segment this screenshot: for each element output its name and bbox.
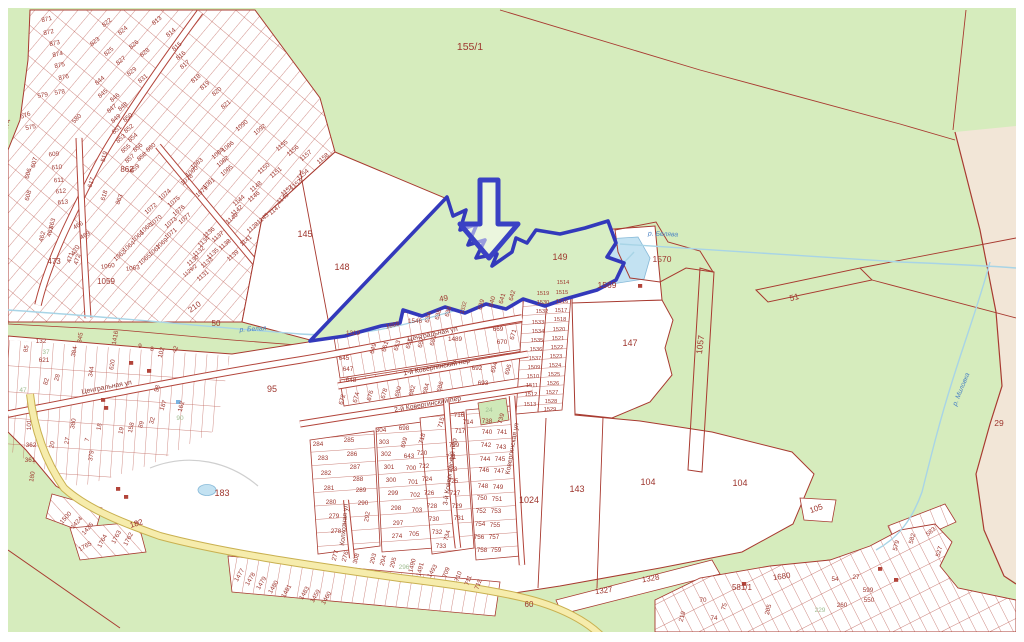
- parcel-label-717: 717: [455, 428, 466, 435]
- parcel-label-1489: 1489: [448, 336, 463, 343]
- parcel-label-145: 145: [297, 229, 312, 239]
- parcel-label-101: 101: [26, 419, 33, 430]
- parcel-label-1059: 1059: [97, 277, 115, 286]
- parcel-label-724: 724: [422, 476, 433, 483]
- parcel-label-749: 749: [493, 484, 504, 491]
- parcel-label-754: 754: [475, 521, 486, 528]
- building-marker: [124, 495, 128, 499]
- map-canvas[interactable]: 155/114514814914795102414310410418329511…: [0, 0, 1024, 642]
- parcel-label-550: 550: [864, 597, 875, 604]
- parcel-label-719: 719: [449, 442, 460, 449]
- parcel-label-70: 70: [699, 597, 707, 604]
- parcel-label-148: 148: [334, 262, 349, 272]
- parcel-label-757: 757: [489, 534, 500, 541]
- parcel-label-60: 60: [525, 600, 534, 609]
- parcel-label-1535: 1535: [531, 338, 543, 344]
- parcel-label-745: 745: [495, 456, 506, 463]
- parcel-label-738: 738: [482, 418, 493, 425]
- parcel-label-104: 104: [732, 478, 747, 488]
- parcel-label-647: 647: [343, 366, 354, 373]
- parcel-label-759: 759: [491, 547, 502, 554]
- parcel-label-361: 361: [25, 457, 36, 464]
- parcel-label-743: 743: [496, 444, 507, 451]
- parcel-label-726: 726: [424, 490, 435, 497]
- parcel-label-613: 613: [57, 199, 69, 207]
- parcel-label-300: 300: [386, 477, 397, 484]
- parcel-label-740: 740: [482, 429, 493, 436]
- parcel-label-1513: 1513: [524, 402, 536, 408]
- parcel-label-702: 702: [410, 492, 421, 499]
- parcel-label-303: 303: [379, 439, 390, 446]
- parcel-label-705: 705: [409, 531, 420, 538]
- parcel-label-283: 283: [318, 455, 329, 462]
- parcel-label-1524: 1524: [549, 363, 561, 369]
- parcel-label-611: 611: [54, 177, 65, 185]
- parcel-label-155/1: 155/1: [457, 41, 483, 53]
- parcel-label-29: 29: [994, 418, 1004, 428]
- parcel-label-302: 302: [381, 451, 392, 458]
- parcel-label-1569: 1569: [598, 280, 617, 290]
- parcel-label-9: 9: [138, 343, 142, 350]
- building-marker: [129, 361, 133, 365]
- parcel-label-1319: 1319: [346, 330, 361, 337]
- parcel-label-610: 610: [51, 164, 63, 172]
- parcel-label-714: 714: [463, 419, 474, 426]
- parcel-label-1546: 1546: [408, 318, 423, 325]
- parcel-label-143: 143: [569, 484, 584, 494]
- parcel-label-286: 286: [347, 451, 358, 458]
- parcel-label-729: 729: [452, 503, 463, 510]
- parcel-label-473: 473: [47, 257, 61, 266]
- parcel-label-746: 746: [479, 467, 490, 474]
- parcel-label-732: 732: [432, 529, 443, 536]
- parcel-label-104: 104: [640, 477, 655, 487]
- parcel-label-752: 752: [476, 508, 487, 515]
- parcel-label-285: 285: [344, 437, 355, 444]
- parcel-label-748: 748: [478, 483, 489, 490]
- parcel-label-1523: 1523: [550, 354, 562, 360]
- parcel-label-725: 725: [448, 478, 459, 485]
- parcel-label-280: 280: [326, 499, 337, 506]
- parcel-label-229: 229: [815, 607, 826, 614]
- parcel-label-299: 299: [388, 490, 399, 497]
- parcel-label-744: 744: [480, 456, 491, 463]
- parcel-label-716: 716: [454, 412, 465, 419]
- parcel-label-24: 24: [485, 407, 493, 414]
- parcel-label-54: 54: [831, 576, 839, 583]
- parcel-label-723: 723: [447, 466, 458, 473]
- parcel-label-290: 290: [358, 500, 369, 507]
- parcel-label-1521: 1521: [552, 336, 564, 342]
- parcel-label-1520: 1520: [553, 327, 565, 333]
- pond-183: [198, 485, 216, 496]
- parcel-label-753: 753: [491, 508, 502, 515]
- parcel-label-758: 758: [477, 547, 488, 554]
- parcel-label-1515: 1515: [556, 290, 568, 296]
- parcel-label-1517: 1517: [555, 308, 567, 314]
- parcel-label-274: 274: [392, 533, 403, 540]
- parcel-label-1532: 1532: [536, 309, 548, 315]
- parcel-label-612: 612: [55, 188, 67, 196]
- building-marker: [101, 398, 105, 402]
- parcel-label-279: 279: [329, 513, 340, 520]
- parcel-label-750: 750: [477, 495, 488, 502]
- building-marker: [638, 284, 642, 288]
- parcel-label-700: 700: [406, 465, 417, 472]
- parcel-label-1512: 1512: [525, 392, 537, 398]
- parcel-label-747: 747: [494, 468, 505, 475]
- parcel-label-621: 621: [39, 357, 50, 364]
- parcel-label-282: 282: [321, 470, 332, 477]
- parcel-label-703: 703: [412, 507, 423, 514]
- parcel-label-693: 693: [478, 380, 489, 387]
- parcel-label-304: 304: [376, 427, 387, 434]
- parcel-label-1570: 1570: [653, 254, 672, 264]
- parcel-label-1509: 1509: [528, 365, 540, 371]
- parcel-label-720: 720: [417, 450, 428, 457]
- parcel-label-301: 301: [384, 464, 395, 471]
- parcel-label-755: 755: [490, 522, 501, 529]
- parcel-label-297: 297: [393, 520, 404, 527]
- parcel-label-648: 648: [346, 377, 357, 384]
- parcel-label-1534: 1534: [532, 329, 544, 335]
- parcel-label-1514: 1514: [557, 280, 569, 286]
- parcel-label-284: 284: [313, 441, 324, 448]
- parcel-label-37: 37: [42, 349, 50, 356]
- building-marker: [104, 406, 108, 410]
- parcel-label-1518: 1518: [554, 317, 566, 323]
- parcel-label-645: 645: [339, 355, 350, 362]
- parcel-label-1511: 1511: [526, 383, 538, 389]
- parcel-label-1519: 1519: [537, 291, 549, 297]
- parcel-label-47: 47: [19, 387, 27, 394]
- parcel-label-183: 183: [214, 488, 229, 498]
- parcel-label-1525: 1525: [548, 372, 560, 378]
- parcel-label-722: 722: [419, 463, 430, 470]
- parcel-label-728: 728: [427, 503, 438, 510]
- parcel-label-149: 149: [552, 252, 567, 262]
- parcel-label-90: 90: [176, 415, 184, 422]
- parcel-label-1527: 1527: [546, 390, 558, 396]
- parcel-label-756: 756: [474, 534, 485, 541]
- parcel-label-1516: 1516: [556, 299, 568, 305]
- parcel-label-287: 287: [350, 464, 361, 471]
- parcel-label-727: 727: [450, 490, 461, 497]
- parcel-label-289: 289: [356, 487, 367, 494]
- parcel-label-581/1: 581/1: [732, 583, 753, 592]
- parcel-label-278: 278: [331, 528, 342, 535]
- parcel-label-730: 730: [429, 516, 440, 523]
- parcel-label-731: 731: [454, 515, 465, 522]
- parcel-label-288: 288: [353, 476, 364, 483]
- parcel-label-95: 95: [267, 384, 277, 394]
- parcel-label-599: 599: [863, 587, 874, 594]
- parcel-label-27: 27: [852, 574, 860, 581]
- parcel-label-669: 669: [493, 326, 504, 333]
- parcel-label-670: 670: [497, 339, 508, 346]
- cadastral-map-view: 155/114514814914795102414310410418329511…: [0, 0, 1024, 642]
- parcel-label-742: 742: [481, 442, 492, 449]
- parcel-label-701: 701: [408, 479, 419, 486]
- parcel-label-1529: 1529: [544, 407, 556, 413]
- parcel-label-132: 132: [36, 338, 47, 345]
- parcel-label-741: 741: [497, 429, 508, 436]
- parcel-label-147: 147: [622, 338, 637, 348]
- building-marker: [147, 369, 151, 373]
- parcel-label-260: 260: [837, 602, 848, 609]
- parcel-label-1522: 1522: [551, 345, 563, 351]
- parcel-label-298: 298: [391, 505, 402, 512]
- parcel-label-1526: 1526: [547, 381, 559, 387]
- parcel-label-362: 362: [26, 442, 37, 449]
- parcel-label-751: 751: [492, 496, 503, 503]
- parcel-label-281: 281: [324, 485, 335, 492]
- parcel-label-1537: 1537: [529, 356, 541, 362]
- river-label-р. Белява: р. Белява: [647, 230, 679, 238]
- parcel-label-692: 692: [472, 365, 483, 372]
- building-marker: [878, 567, 882, 571]
- parcel-label-643: 643: [404, 453, 415, 460]
- parcel-label-721: 721: [446, 454, 457, 461]
- parcel-label-8: 8: [150, 346, 154, 353]
- parcel-label-1530: 1530: [537, 300, 549, 306]
- parcel-label-1510: 1510: [527, 374, 539, 380]
- building-marker: [116, 487, 120, 491]
- parcel-label-609: 609: [48, 151, 60, 159]
- parcel-label-74: 74: [710, 615, 718, 622]
- building-marker: [894, 578, 898, 582]
- parcel-label-50: 50: [212, 319, 221, 328]
- parcel-label-1528: 1528: [545, 399, 557, 405]
- parcel-label-733: 733: [436, 543, 447, 550]
- parcel-label-1533: 1533: [532, 320, 544, 326]
- parcel-label-1536: 1536: [530, 347, 542, 353]
- parcel-label-698: 698: [399, 425, 410, 432]
- parcel-label-1024: 1024: [519, 495, 539, 505]
